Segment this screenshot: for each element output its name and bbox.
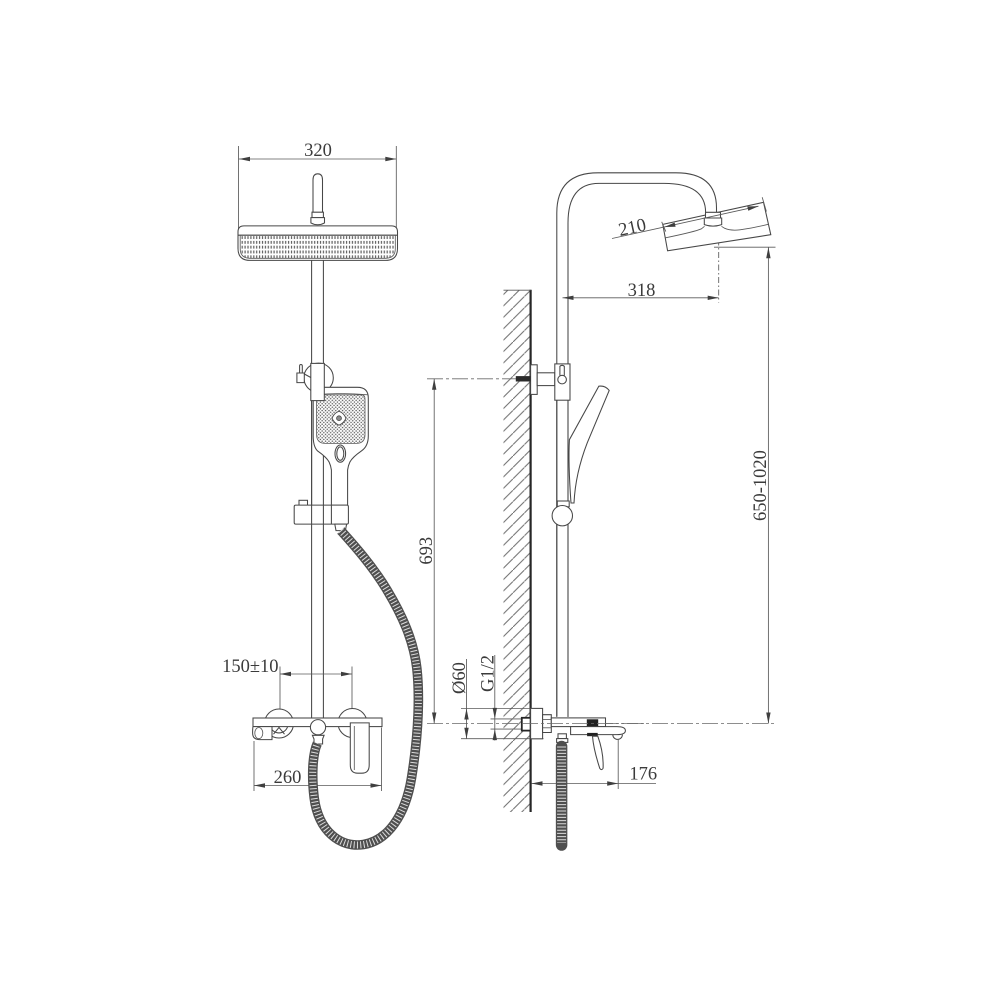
svg-text:650-1020: 650-1020 bbox=[751, 450, 771, 521]
svg-text:318: 318 bbox=[628, 281, 656, 301]
svg-text:150±10: 150±10 bbox=[222, 657, 278, 677]
svg-text:G1/2: G1/2 bbox=[479, 655, 499, 692]
svg-text:693: 693 bbox=[417, 537, 437, 565]
svg-text:Ø60: Ø60 bbox=[450, 662, 470, 694]
svg-text:260: 260 bbox=[274, 768, 302, 788]
svg-text:320: 320 bbox=[304, 141, 332, 161]
svg-text:176: 176 bbox=[629, 765, 657, 785]
